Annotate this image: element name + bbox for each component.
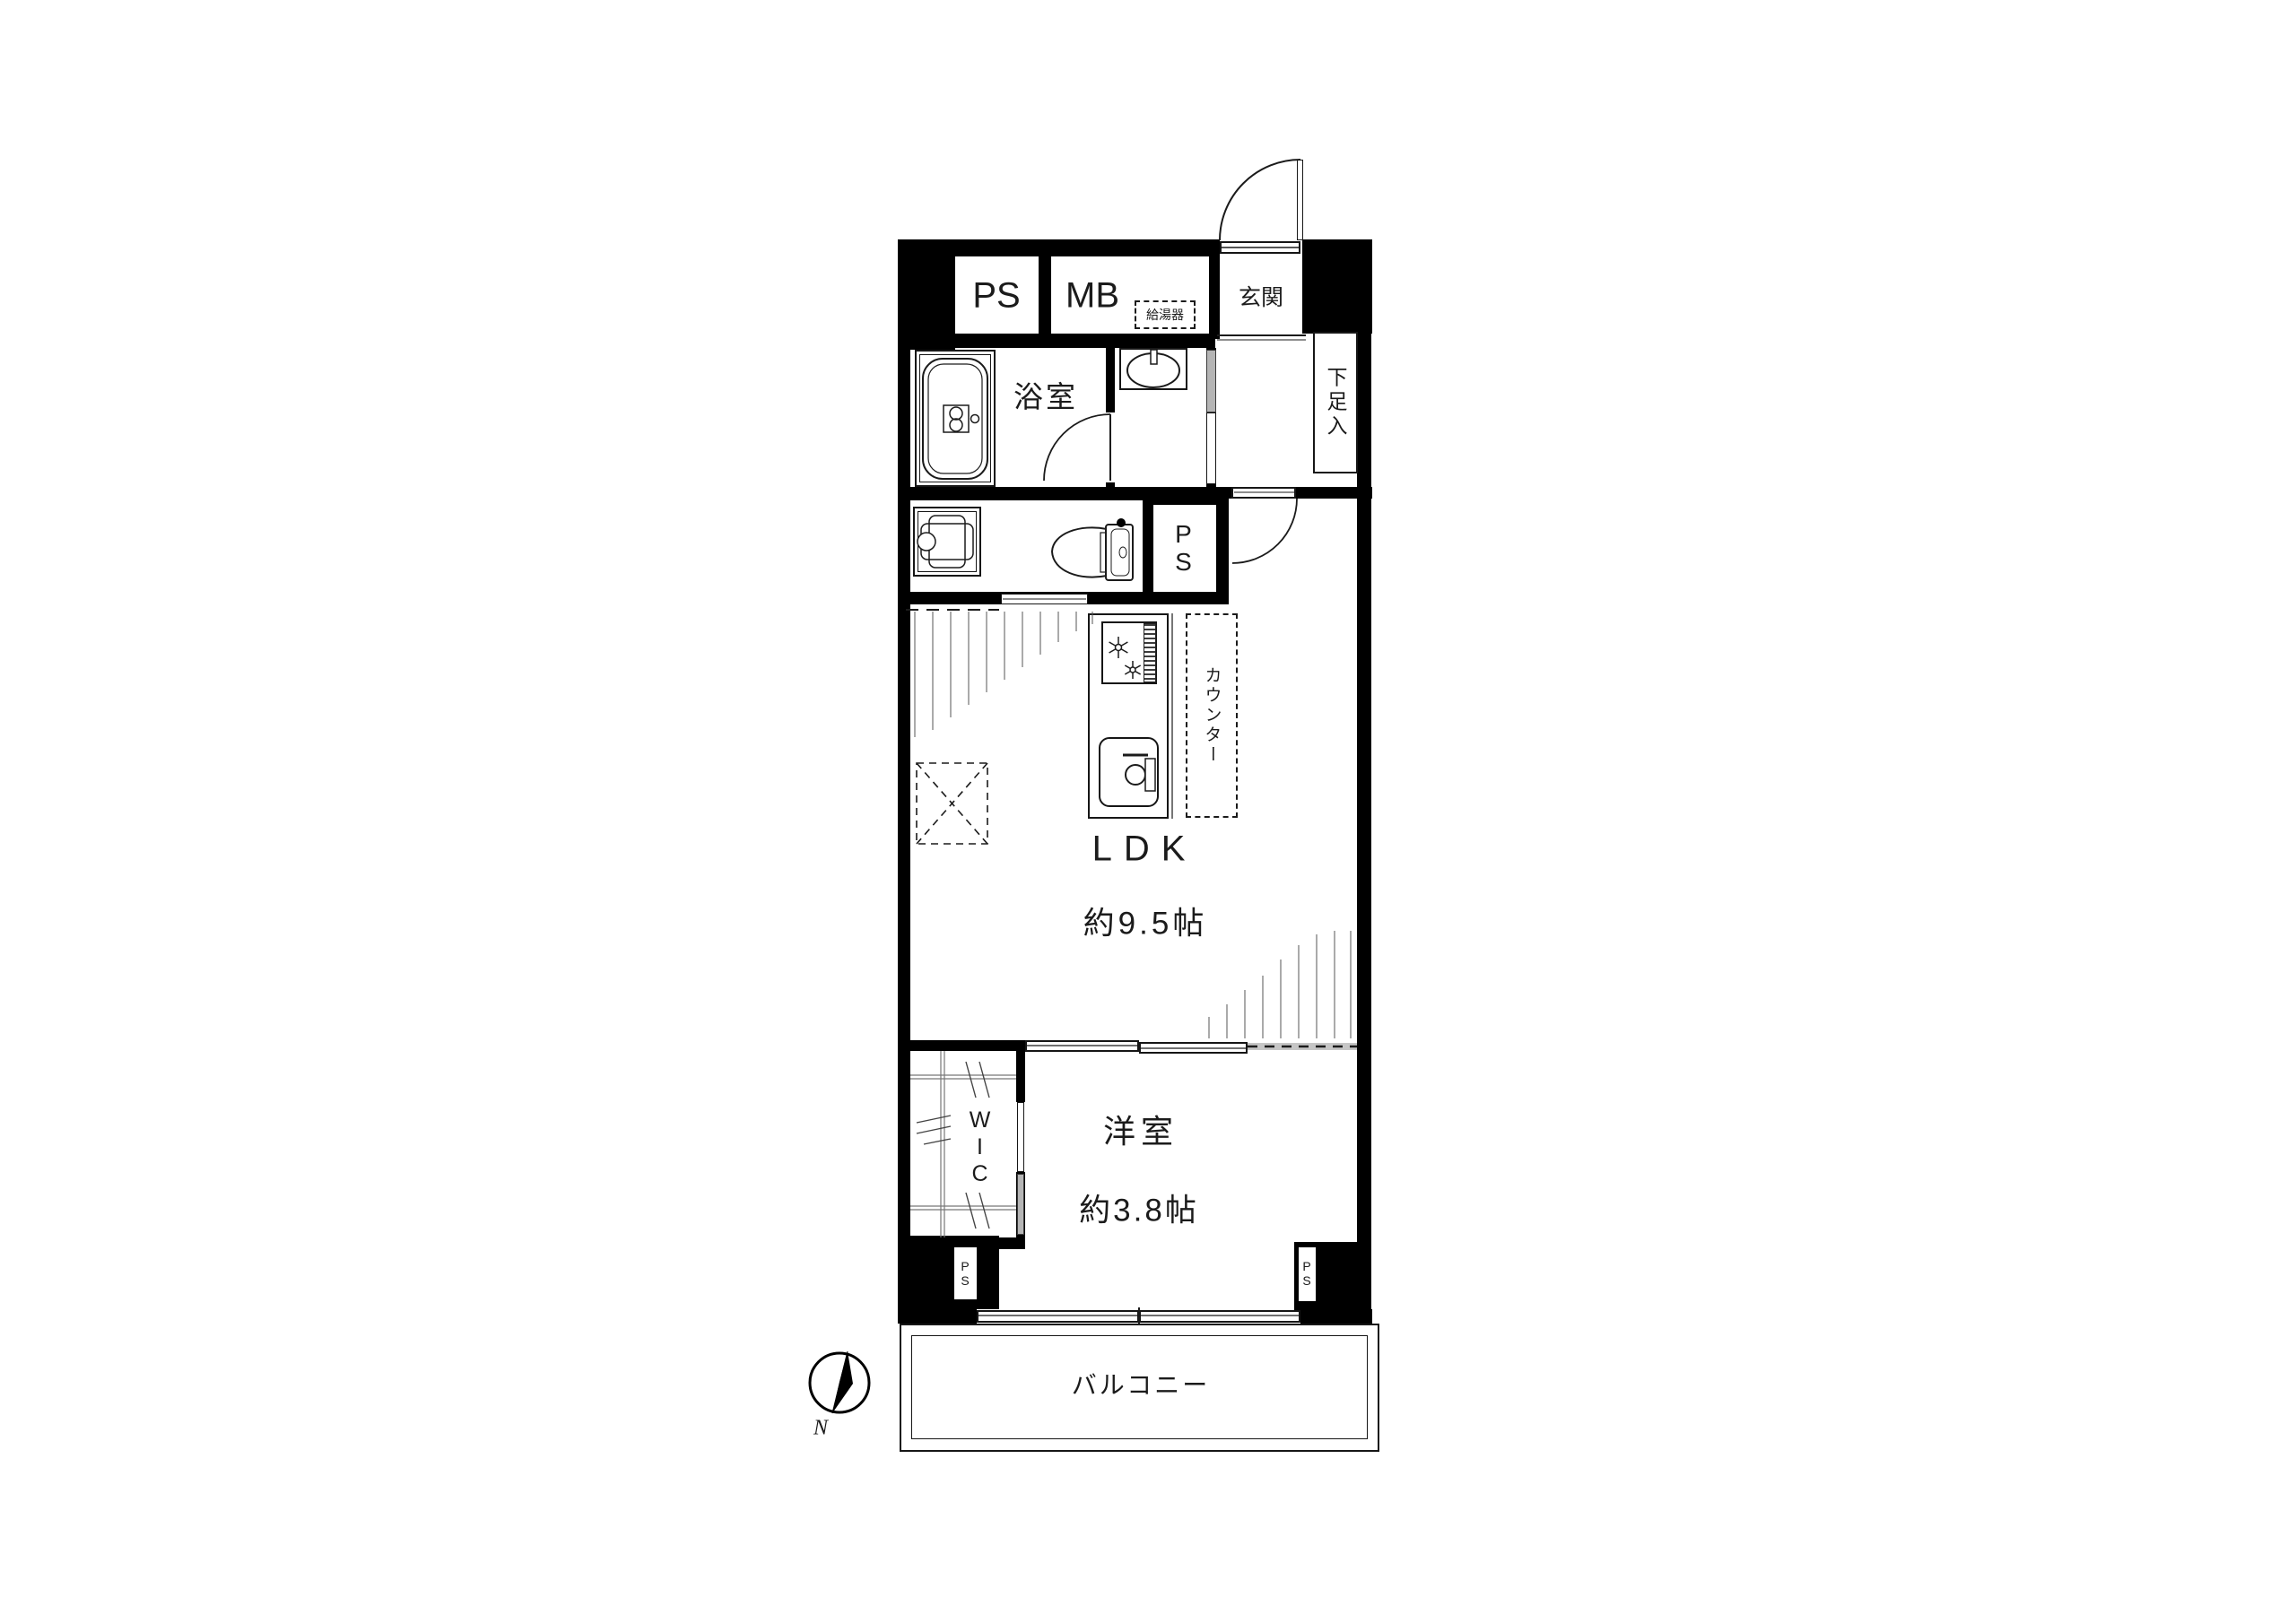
ldk-hatch-bottom-right (1209, 931, 1351, 1038)
entrance-door-arc (1220, 160, 1300, 240)
room-label-ldk: LDK (1092, 829, 1197, 870)
hall-door-arc (1232, 499, 1297, 563)
bathtub-inner-frame (919, 354, 991, 482)
room-label-bedroom: 洋室 (1103, 1106, 1178, 1152)
floor-plan-page: 給湯器 カウンター (0, 0, 2296, 1615)
wic-door-leaf (1017, 1102, 1024, 1172)
wall-hall-ldk-left (1216, 487, 1231, 499)
room-label-ps-bottom-right: PS (1300, 1259, 1314, 1288)
wall-top-right-block (1302, 239, 1372, 334)
kitchen-sink (1099, 737, 1159, 807)
room-label-mb: MB (1065, 276, 1119, 317)
washing-machine-pan-inner (918, 511, 977, 572)
room-label-shoe-cabinet: 下足入 (1320, 367, 1351, 439)
washroom-sliding-track (1206, 412, 1216, 484)
bedroom-window-1 (977, 1310, 1139, 1323)
room-label-entrance: 玄関 (1239, 280, 1283, 312)
wall-bottom-left-block (898, 1236, 999, 1309)
room-label-ps-top: PS (972, 276, 1020, 317)
counter-label: カウンター (1200, 666, 1224, 765)
entrance-door-leaf (1297, 160, 1303, 240)
wall-right (1357, 332, 1371, 1242)
hanging-wall-bar (1248, 1043, 1357, 1050)
washroom-sliding-panel (1206, 350, 1216, 412)
compass-north-label: N (813, 1417, 828, 1441)
wall-wic-top (898, 1040, 1025, 1051)
wall-mb-entrance (1209, 239, 1220, 339)
compass-icon (810, 1351, 869, 1413)
ldk-hatch-top-left (915, 612, 1092, 737)
room-label-balcony: バルコニー (1072, 1366, 1210, 1402)
water-heater-box: 給湯器 (1135, 300, 1196, 329)
bedroom-window-2 (1139, 1310, 1300, 1323)
wall-ps-mb (1039, 239, 1051, 339)
room-label-wic: WIC (967, 1107, 993, 1188)
toilet-sliding-door (1001, 594, 1088, 604)
bathroom-door-arc (1044, 414, 1110, 481)
refrigerator-space (917, 763, 987, 844)
room-label-ldk-size: 約9.5帖 (1083, 899, 1208, 944)
entrance-threshold (1220, 241, 1300, 254)
bathroom-door-opening (1106, 412, 1115, 482)
washbasin-counter (1119, 348, 1187, 390)
kitchen-counter-box: カウンター (1186, 613, 1238, 818)
wall-wic-right-upper (1016, 1051, 1025, 1102)
room-label-ps-middle: PS (1169, 520, 1197, 576)
wic-sliding-panel (1017, 1174, 1024, 1235)
stove-grill (1144, 623, 1156, 682)
room-label-bedroom-size: 約3.8帖 (1079, 1185, 1199, 1231)
wic-shelf-lines (910, 1051, 1016, 1237)
water-heater-label: 給湯器 (1146, 306, 1184, 324)
room-label-ps-bottom-left: PS (958, 1259, 972, 1288)
wall-left (898, 239, 910, 1309)
wall-row1-row2 (898, 334, 1215, 348)
room-label-bathroom: 浴室 (1013, 373, 1078, 416)
ldk-bedroom-slider-2 (1139, 1042, 1248, 1054)
wall-bottom-right (1300, 1309, 1372, 1324)
wall-bottom-left (898, 1309, 977, 1324)
ldk-bedroom-slider-1 (1025, 1040, 1139, 1052)
toilet-icon (1052, 527, 1107, 577)
hall-ldk-door-leaf (1231, 487, 1296, 499)
